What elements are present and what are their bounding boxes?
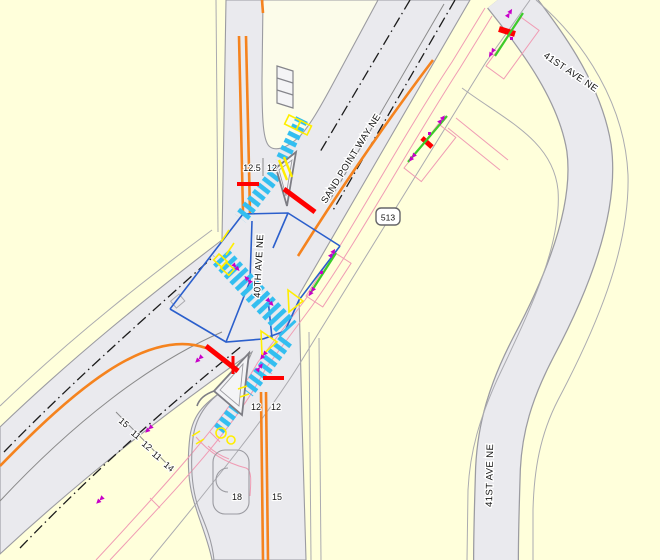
- lane-width-north-2: 12: [267, 163, 277, 173]
- lane-width-south-lower-2: 15: [272, 492, 282, 502]
- lane-width-north-1: 12.5: [243, 163, 261, 173]
- map-viewport[interactable]: 513 SAND POINT WAY NE 40TH AVE NE 41ST A…: [0, 0, 660, 560]
- lane-width-south-lower-1: 18: [232, 492, 242, 502]
- gis-map-canvas[interactable]: 513 SAND POINT WAY NE 40TH AVE NE 41ST A…: [0, 0, 660, 560]
- route-shield-number: 513: [381, 213, 395, 223]
- lane-width-south-upper-2: 12: [271, 402, 281, 412]
- route-shield-icon: 513: [376, 208, 400, 225]
- street-label-41st-ave-ne-lower: 41ST AVE NE: [484, 444, 496, 507]
- island-stair-structure: [277, 66, 293, 108]
- marking-dot: [510, 37, 513, 40]
- marking-dot: [428, 132, 431, 135]
- marking-dot: [320, 271, 323, 274]
- lane-width-south-upper-1: 12: [251, 402, 261, 412]
